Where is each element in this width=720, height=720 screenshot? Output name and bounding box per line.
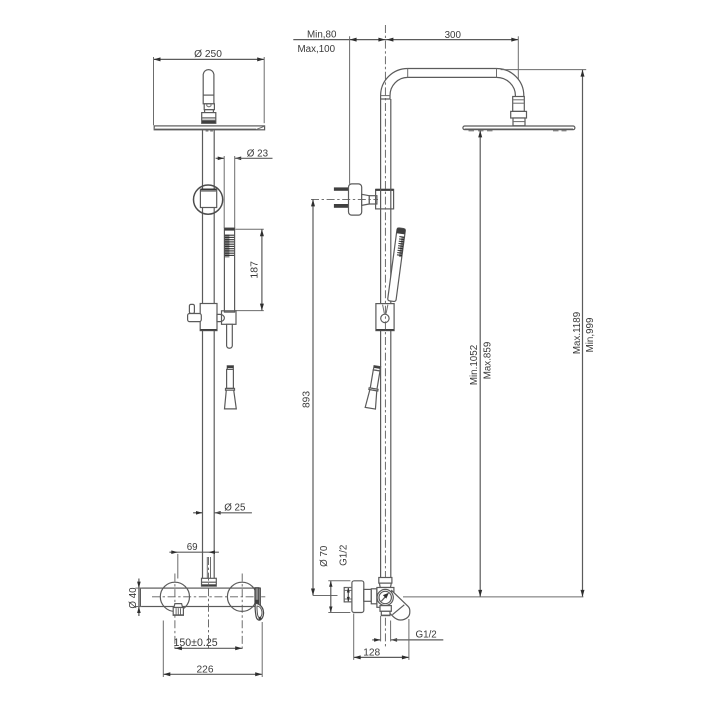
svg-text:Max.1189: Max.1189 — [572, 312, 583, 354]
svg-text:G1/2: G1/2 — [416, 629, 437, 640]
svg-text:893: 893 — [302, 391, 313, 408]
svg-text:Ø 70: Ø 70 — [319, 545, 330, 567]
svg-text:Max.859: Max.859 — [482, 342, 493, 380]
svg-text:Ø 250: Ø 250 — [194, 49, 222, 60]
svg-text:Min.1052: Min.1052 — [469, 345, 480, 385]
svg-text:Ø 40: Ø 40 — [128, 587, 139, 609]
svg-text:Min,80: Min,80 — [307, 30, 337, 41]
svg-text:187: 187 — [249, 261, 261, 279]
svg-text:69: 69 — [187, 542, 198, 553]
svg-text:Max,100: Max,100 — [298, 44, 336, 55]
svg-text:Min,999: Min,999 — [585, 318, 596, 353]
svg-text:Ø 25: Ø 25 — [224, 503, 246, 514]
svg-text:G1/2: G1/2 — [339, 545, 350, 566]
